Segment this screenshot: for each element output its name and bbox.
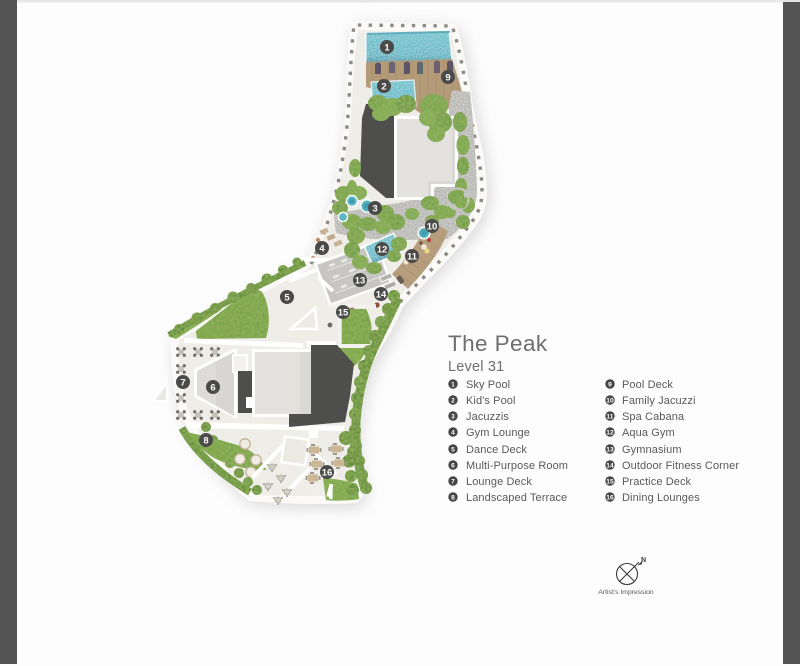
svg-text:16: 16 [322, 467, 333, 478]
svg-text:16: 16 [606, 494, 614, 501]
svg-text:6: 6 [210, 382, 215, 393]
svg-text:Artist's Impression: Artist's Impression [598, 589, 654, 596]
svg-text:6: 6 [451, 462, 455, 469]
svg-text:4: 4 [451, 429, 455, 436]
svg-text:15: 15 [606, 478, 614, 485]
svg-text:14: 14 [606, 462, 614, 469]
svg-text:11: 11 [606, 413, 613, 420]
svg-text:2: 2 [381, 81, 386, 92]
svg-text:Outdoor Fitness Corner: Outdoor Fitness Corner [622, 460, 739, 472]
svg-text:12: 12 [377, 244, 388, 255]
svg-text:Lounge Deck: Lounge Deck [466, 476, 532, 488]
svg-text:Kid's Pool: Kid's Pool [466, 395, 516, 407]
svg-text:Landscaped Terrace: Landscaped Terrace [466, 492, 567, 504]
svg-text:5: 5 [451, 446, 455, 453]
svg-text:8: 8 [451, 494, 455, 501]
svg-text:2: 2 [451, 397, 455, 404]
svg-text:Jacuzzis: Jacuzzis [466, 411, 509, 423]
svg-text:Family Jacuzzi: Family Jacuzzi [622, 395, 696, 407]
svg-text:9: 9 [608, 381, 612, 388]
svg-text:Multi-Purpose Room: Multi-Purpose Room [466, 460, 568, 472]
svg-text:The Peak: The Peak [448, 331, 548, 356]
svg-text:14: 14 [376, 289, 387, 300]
svg-text:9: 9 [445, 72, 450, 83]
svg-text:8: 8 [203, 435, 208, 446]
svg-text:12: 12 [606, 429, 614, 436]
svg-text:15: 15 [338, 307, 349, 318]
svg-text:N: N [641, 557, 646, 564]
svg-text:10: 10 [606, 397, 614, 404]
svg-text:4: 4 [319, 243, 325, 254]
svg-text:Dance Deck: Dance Deck [466, 444, 527, 456]
svg-text:Practice Deck: Practice Deck [622, 476, 692, 488]
svg-text:13: 13 [355, 275, 366, 286]
svg-text:7: 7 [451, 478, 455, 485]
svg-text:11: 11 [407, 251, 418, 262]
svg-text:5: 5 [284, 292, 290, 303]
svg-text:Gymnasium: Gymnasium [622, 444, 682, 456]
svg-text:7: 7 [180, 377, 185, 388]
svg-text:3: 3 [451, 413, 455, 420]
svg-text:Pool Deck: Pool Deck [622, 379, 673, 391]
svg-text:3: 3 [372, 203, 377, 214]
svg-text:13: 13 [606, 446, 614, 453]
svg-text:Level 31: Level 31 [448, 359, 504, 375]
svg-text:Sky Pool: Sky Pool [466, 379, 510, 391]
svg-text:Gym Lounge: Gym Lounge [466, 427, 530, 439]
svg-text:Dining Lounges: Dining Lounges [622, 492, 700, 504]
svg-text:1: 1 [384, 42, 390, 53]
svg-text:1: 1 [451, 381, 455, 388]
svg-text:Spa Cabana: Spa Cabana [622, 411, 685, 423]
svg-text:10: 10 [427, 221, 438, 232]
svg-text:Aqua Gym: Aqua Gym [622, 427, 675, 439]
